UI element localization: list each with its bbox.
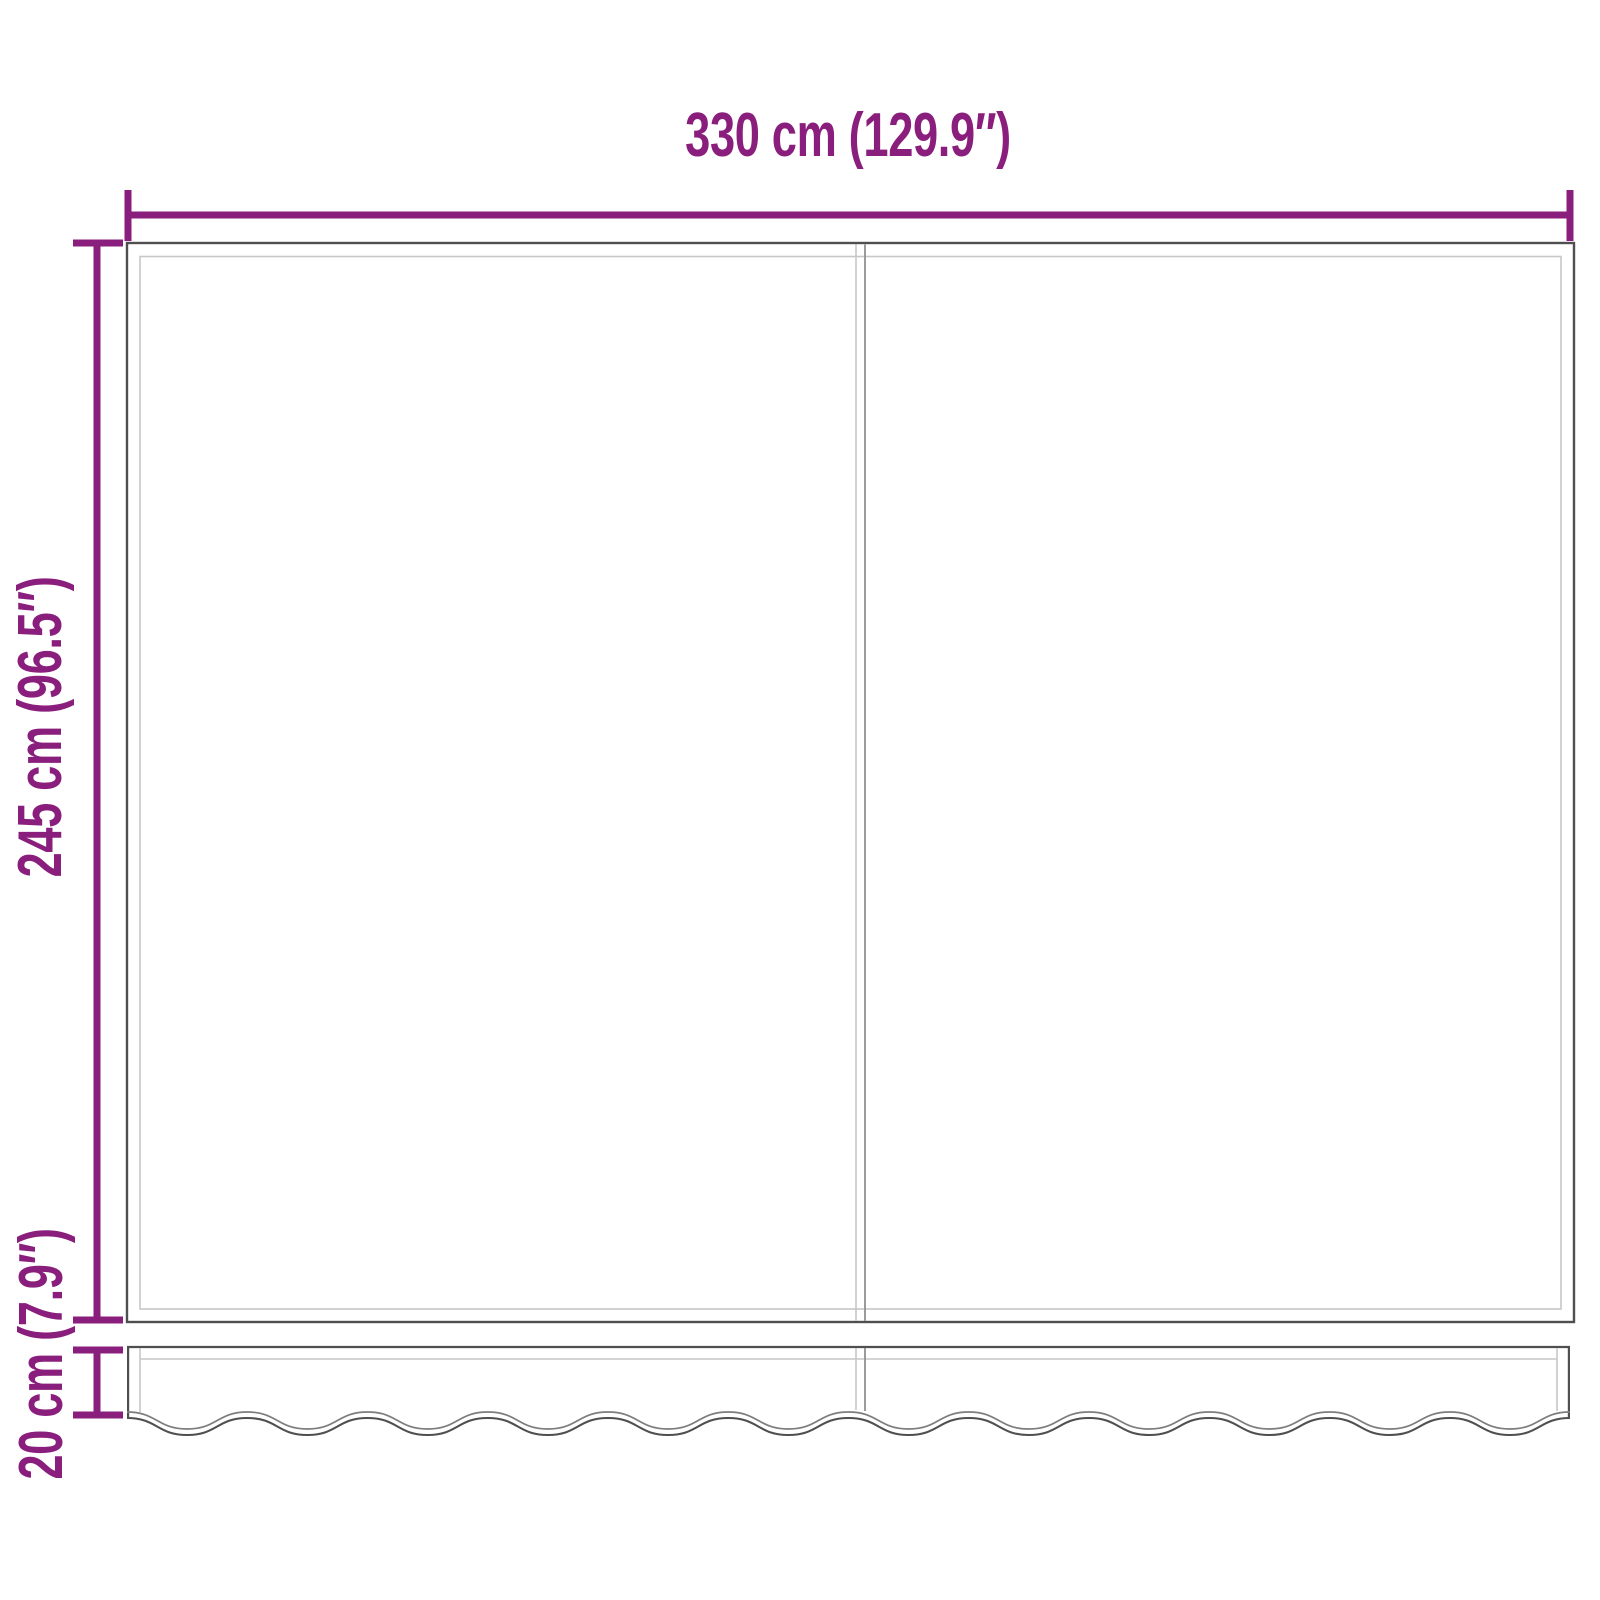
fabric-panel bbox=[127, 243, 1574, 1322]
valance-dimension-text: 20 cm (7.9″) bbox=[11, 1228, 73, 1479]
height-dimension-label: 245 cm (96.5″) bbox=[10, 521, 72, 933]
width-dimension-line bbox=[126, 212, 1572, 219]
width-dimension-left-tick bbox=[125, 190, 132, 241]
valance-dimension-label: 20 cm (7.9″) bbox=[11, 1182, 73, 1526]
valance bbox=[127, 1346, 1570, 1435]
awning-fabric-dimension-diagram: 330 cm (129.9″) 245 cm (96.5″) 20 cm (7.… bbox=[0, 0, 1600, 1600]
diagram-drawing bbox=[0, 0, 1600, 1600]
width-dimension-text: 330 cm (129.9″) bbox=[685, 105, 1011, 167]
fabric-panel-outline bbox=[127, 243, 1574, 1322]
width-dimension bbox=[125, 190, 1574, 241]
fabric-panel-inner-hem-line bbox=[140, 257, 1561, 1310]
valance-height-dimension bbox=[73, 1347, 123, 1419]
height-dimension-line bbox=[94, 243, 101, 1320]
valance-scallop-edge bbox=[127, 1418, 1570, 1435]
valance-scallop-inner-line bbox=[127, 1412, 1570, 1429]
width-dimension-label: 330 cm (129.9″) bbox=[625, 105, 1071, 167]
valance-dimension-top-tick bbox=[73, 1347, 123, 1354]
height-dimension bbox=[73, 240, 123, 1324]
height-dimension-bottom-tick bbox=[73, 1317, 123, 1324]
valance-dimension-bottom-tick bbox=[73, 1412, 123, 1419]
height-dimension-text: 245 cm (96.5″) bbox=[10, 577, 72, 878]
height-dimension-top-tick bbox=[73, 240, 123, 247]
valance-dimension-line bbox=[94, 1350, 101, 1415]
width-dimension-right-tick bbox=[1567, 190, 1574, 241]
